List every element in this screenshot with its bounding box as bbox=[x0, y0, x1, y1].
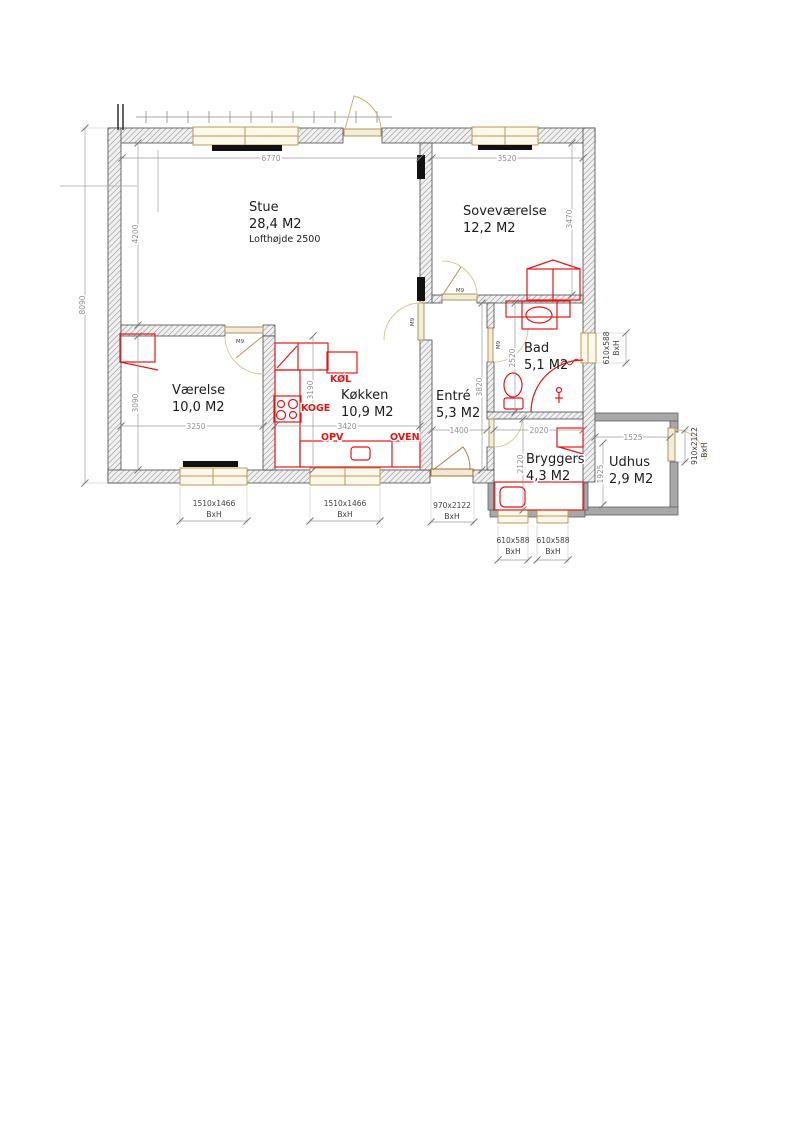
fridge bbox=[327, 352, 357, 373]
wall-bad-left-b bbox=[487, 362, 494, 412]
door-code-bad: M9 bbox=[496, 340, 502, 349]
wall-bottom-left bbox=[108, 470, 430, 483]
dim-udhus-height: 1925 bbox=[596, 464, 605, 483]
dim-bryggers-height: 2120 bbox=[516, 454, 525, 473]
radiator-sove bbox=[478, 145, 532, 150]
floor-plan-page: Stue 28,4 M2 Lofthøjde 2500 Soveværelse … bbox=[0, 0, 800, 1132]
vaerelse-fixture bbox=[120, 334, 158, 370]
dim-koekken-width: 3420 bbox=[337, 422, 356, 431]
dim-udhus-width: 1525 bbox=[623, 433, 642, 442]
door-code-sove: M9 bbox=[456, 288, 465, 294]
room-label-koekken: Køkken bbox=[341, 388, 388, 403]
dim-stue-height: 4200 bbox=[131, 224, 140, 243]
door-swing-bryggers bbox=[494, 419, 522, 447]
door-bxh-back: BxH bbox=[444, 512, 459, 521]
dim-vaerelse-width: 3250 bbox=[186, 422, 205, 431]
window-bryggers-south-2 bbox=[537, 510, 568, 523]
dim-sove-height: 3470 bbox=[565, 209, 574, 228]
room-area-udhus: 2,9 M2 bbox=[609, 472, 653, 487]
hob-label: KOGE bbox=[301, 403, 330, 414]
wall-vaerelse-top-b bbox=[263, 325, 275, 336]
dim-entre-height: 3820 bbox=[475, 377, 484, 396]
door-swing-entrance-north bbox=[345, 96, 381, 129]
udhus-wall-bottom bbox=[583, 507, 678, 515]
room-area-koekken: 10,9 M2 bbox=[341, 405, 394, 420]
window-sove-north bbox=[472, 127, 538, 145]
kitchen-counter-top bbox=[275, 343, 328, 370]
door-leaf-stue-entre bbox=[418, 303, 424, 340]
bryggers-cabinet bbox=[557, 428, 583, 447]
bryggers-sink bbox=[500, 487, 525, 507]
dim-koekken-height: 3190 bbox=[306, 380, 315, 399]
radiator-wall-upper bbox=[417, 155, 425, 179]
room-label-entre: Entré bbox=[436, 389, 471, 404]
window-stue-north bbox=[193, 127, 298, 145]
shower-head bbox=[557, 388, 562, 393]
wall-vaerelse-koekken bbox=[263, 336, 275, 470]
kitchen-sink bbox=[351, 447, 370, 460]
room-label-stue: Stue bbox=[249, 200, 279, 215]
window-size-vaerelse: 1510x1466 bbox=[193, 499, 236, 508]
udhus-wall-right-b bbox=[670, 462, 678, 508]
wall-sove-bottom-a bbox=[432, 295, 442, 303]
room-area-bryggers: 4,3 M2 bbox=[526, 469, 570, 484]
dim-entre-width: 1400 bbox=[449, 426, 468, 435]
window-size-bryggers-2: 610x588 bbox=[536, 536, 569, 545]
wall-bad-left-a bbox=[487, 303, 494, 328]
wall-left bbox=[108, 128, 121, 483]
interior-walls bbox=[121, 143, 583, 470]
door-code-vaerelse: M9 bbox=[236, 339, 245, 345]
dim-overall-height: 8090 bbox=[78, 295, 87, 314]
wall-sove-bottom-b bbox=[477, 295, 583, 303]
door-size-udhus: 910x2122 bbox=[690, 427, 699, 465]
window-bxh-koekken: BxH bbox=[337, 510, 352, 519]
bryggers-ext-wall-right bbox=[584, 483, 588, 510]
room-area-stue: 28,4 M2 bbox=[249, 217, 302, 232]
vanity-sink bbox=[526, 307, 552, 323]
window-bad-east bbox=[581, 333, 596, 363]
oven-label: OVEN bbox=[390, 432, 420, 443]
wall-right-upper bbox=[583, 128, 595, 333]
window-bxh-vaerelse: BxH bbox=[206, 510, 221, 519]
room-label-bryggers: Bryggers bbox=[526, 452, 585, 467]
window-bxh-bryggers-2: BxH bbox=[545, 547, 560, 556]
window-vaerelse-south bbox=[180, 468, 247, 485]
door-leaf-bad bbox=[488, 328, 493, 362]
wall-bottom-stub bbox=[473, 470, 494, 483]
dishwasher-label: OPV bbox=[321, 432, 344, 443]
dim-vaerelse-height: 3090 bbox=[131, 393, 140, 412]
window-size-bryggers-1: 610x588 bbox=[496, 536, 529, 545]
terrace-edge-marks bbox=[136, 111, 392, 123]
door-leaf-udhus bbox=[668, 428, 675, 461]
kitchen-counter-bottom bbox=[300, 441, 420, 467]
room-label-sove: Soveværelse bbox=[463, 204, 547, 219]
dimension-ticks bbox=[82, 125, 689, 564]
room-label-bad: Bad bbox=[524, 341, 549, 356]
radiator-vaerelse bbox=[183, 461, 238, 467]
door-code-stue: M9 bbox=[410, 317, 416, 326]
extension-lines bbox=[80, 128, 692, 563]
window-size-koekken: 1510x1466 bbox=[324, 499, 367, 508]
fridge-label: KØL bbox=[330, 374, 351, 385]
dim-sove-width: 3520 bbox=[497, 154, 516, 163]
room-area-sove: 12,2 M2 bbox=[463, 221, 516, 236]
bryggers-counter bbox=[494, 482, 583, 510]
window-bxh-bad: BxH bbox=[612, 340, 621, 355]
radiator-wall-lower bbox=[417, 277, 425, 301]
window-bxh-bryggers-1: BxH bbox=[505, 547, 520, 556]
door-size-back: 970x2122 bbox=[433, 501, 471, 510]
door-swing-back-entre bbox=[433, 447, 470, 470]
room-label-vaerelse: Værelse bbox=[172, 383, 225, 398]
door-leaf-back-entre bbox=[431, 469, 473, 476]
window-bryggers-south-1 bbox=[498, 510, 528, 523]
wall-bad-bottom bbox=[487, 412, 583, 419]
door-bxh-udhus: BxH bbox=[700, 442, 709, 457]
wall-stue-entre-lower bbox=[420, 340, 432, 470]
udhus-wall-top bbox=[595, 413, 678, 421]
door-leaf-entrance-north bbox=[344, 129, 381, 136]
room-area-bad: 5,1 M2 bbox=[524, 358, 568, 373]
wall-bryggers-left bbox=[487, 447, 494, 470]
dim-stue-width: 6770 bbox=[261, 154, 280, 163]
wall-right-lower bbox=[583, 363, 595, 482]
floor-plan-drawing: Stue 28,4 M2 Lofthøjde 2500 Soveværelse … bbox=[0, 0, 800, 1132]
toilet-bowl bbox=[504, 373, 522, 397]
room-note-stue: Lofthøjde 2500 bbox=[249, 234, 320, 245]
dimension-labels: 6770 3520 3250 3420 1400 2020 1525 8090 … bbox=[78, 154, 643, 484]
radiator-stue bbox=[212, 145, 282, 151]
room-area-vaerelse: 10,0 M2 bbox=[172, 400, 225, 415]
toilet-tank bbox=[504, 398, 523, 409]
dim-bad-height: 2520 bbox=[508, 348, 517, 367]
window-size-bad: 610x588 bbox=[602, 331, 611, 364]
window-koekken-south bbox=[310, 468, 380, 485]
door-leaf-vaerelse bbox=[225, 327, 263, 333]
dim-bryggers-width: 2020 bbox=[529, 426, 548, 435]
door-leaf-sove bbox=[442, 294, 477, 300]
room-area-entre: 5,3 M2 bbox=[436, 406, 480, 421]
room-label-udhus: Udhus bbox=[609, 455, 650, 470]
